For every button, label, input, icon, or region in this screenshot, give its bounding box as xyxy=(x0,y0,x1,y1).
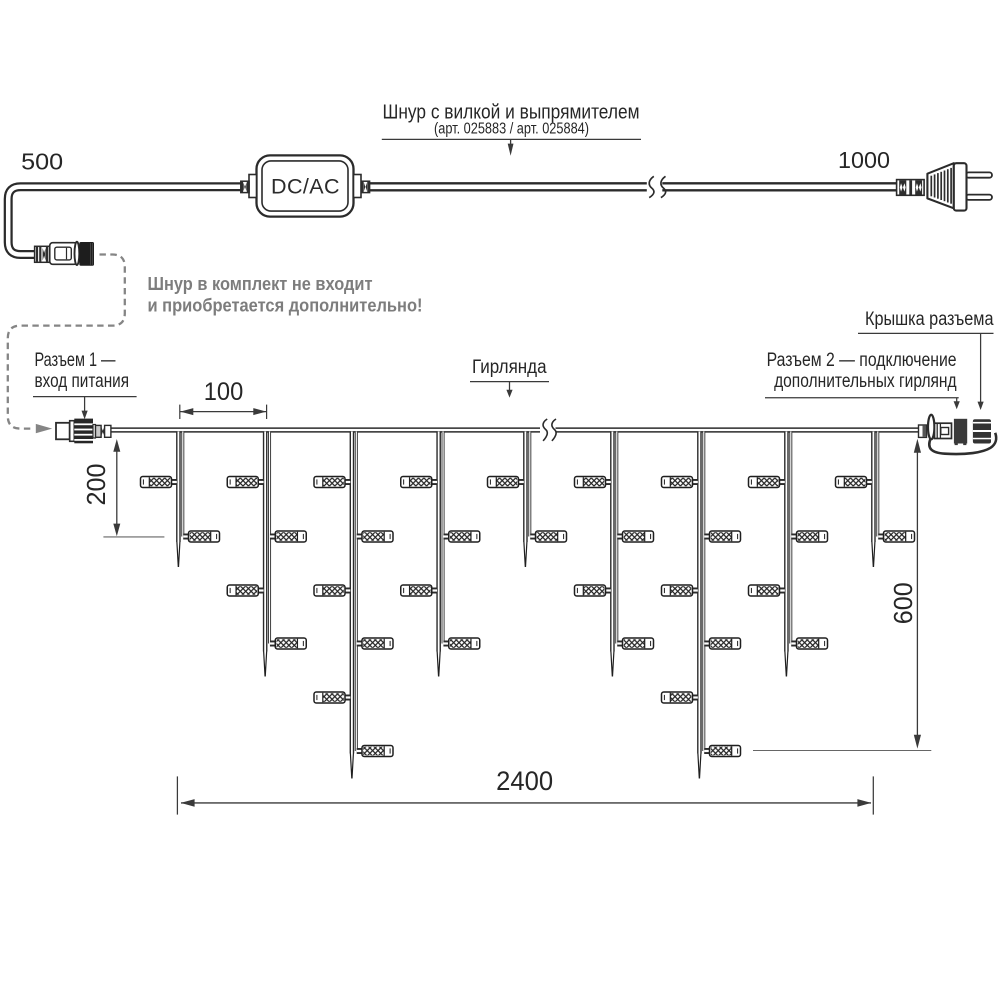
svg-text:DC/AC: DC/AC xyxy=(271,174,340,198)
svg-text:Разъем 1 —: Разъем 1 — xyxy=(35,349,116,371)
svg-text:500: 500 xyxy=(21,149,63,175)
svg-text:Шнур в комплект не входит: Шнур в комплект не входит xyxy=(148,273,373,294)
svg-text:200: 200 xyxy=(81,464,111,506)
svg-text:1000: 1000 xyxy=(838,147,890,173)
svg-text:100: 100 xyxy=(204,378,244,406)
svg-text:Разъем 2 — подключение: Разъем 2 — подключение xyxy=(767,350,957,371)
svg-text:Гирлянда: Гирлянда xyxy=(472,357,547,378)
svg-text:Крышка разъема: Крышка разъема xyxy=(865,309,994,330)
svg-text:(арт. 025883 / арт. 025884): (арт. 025883 / арт. 025884) xyxy=(434,120,589,137)
svg-text:2400: 2400 xyxy=(496,766,553,796)
svg-text:дополнительных гирлянд: дополнительных гирлянд xyxy=(774,371,957,392)
svg-text:и приобретается дополнительно!: и приобретается дополнительно! xyxy=(148,294,423,315)
svg-text:600: 600 xyxy=(888,582,918,624)
svg-text:вход питания: вход питания xyxy=(35,370,130,392)
